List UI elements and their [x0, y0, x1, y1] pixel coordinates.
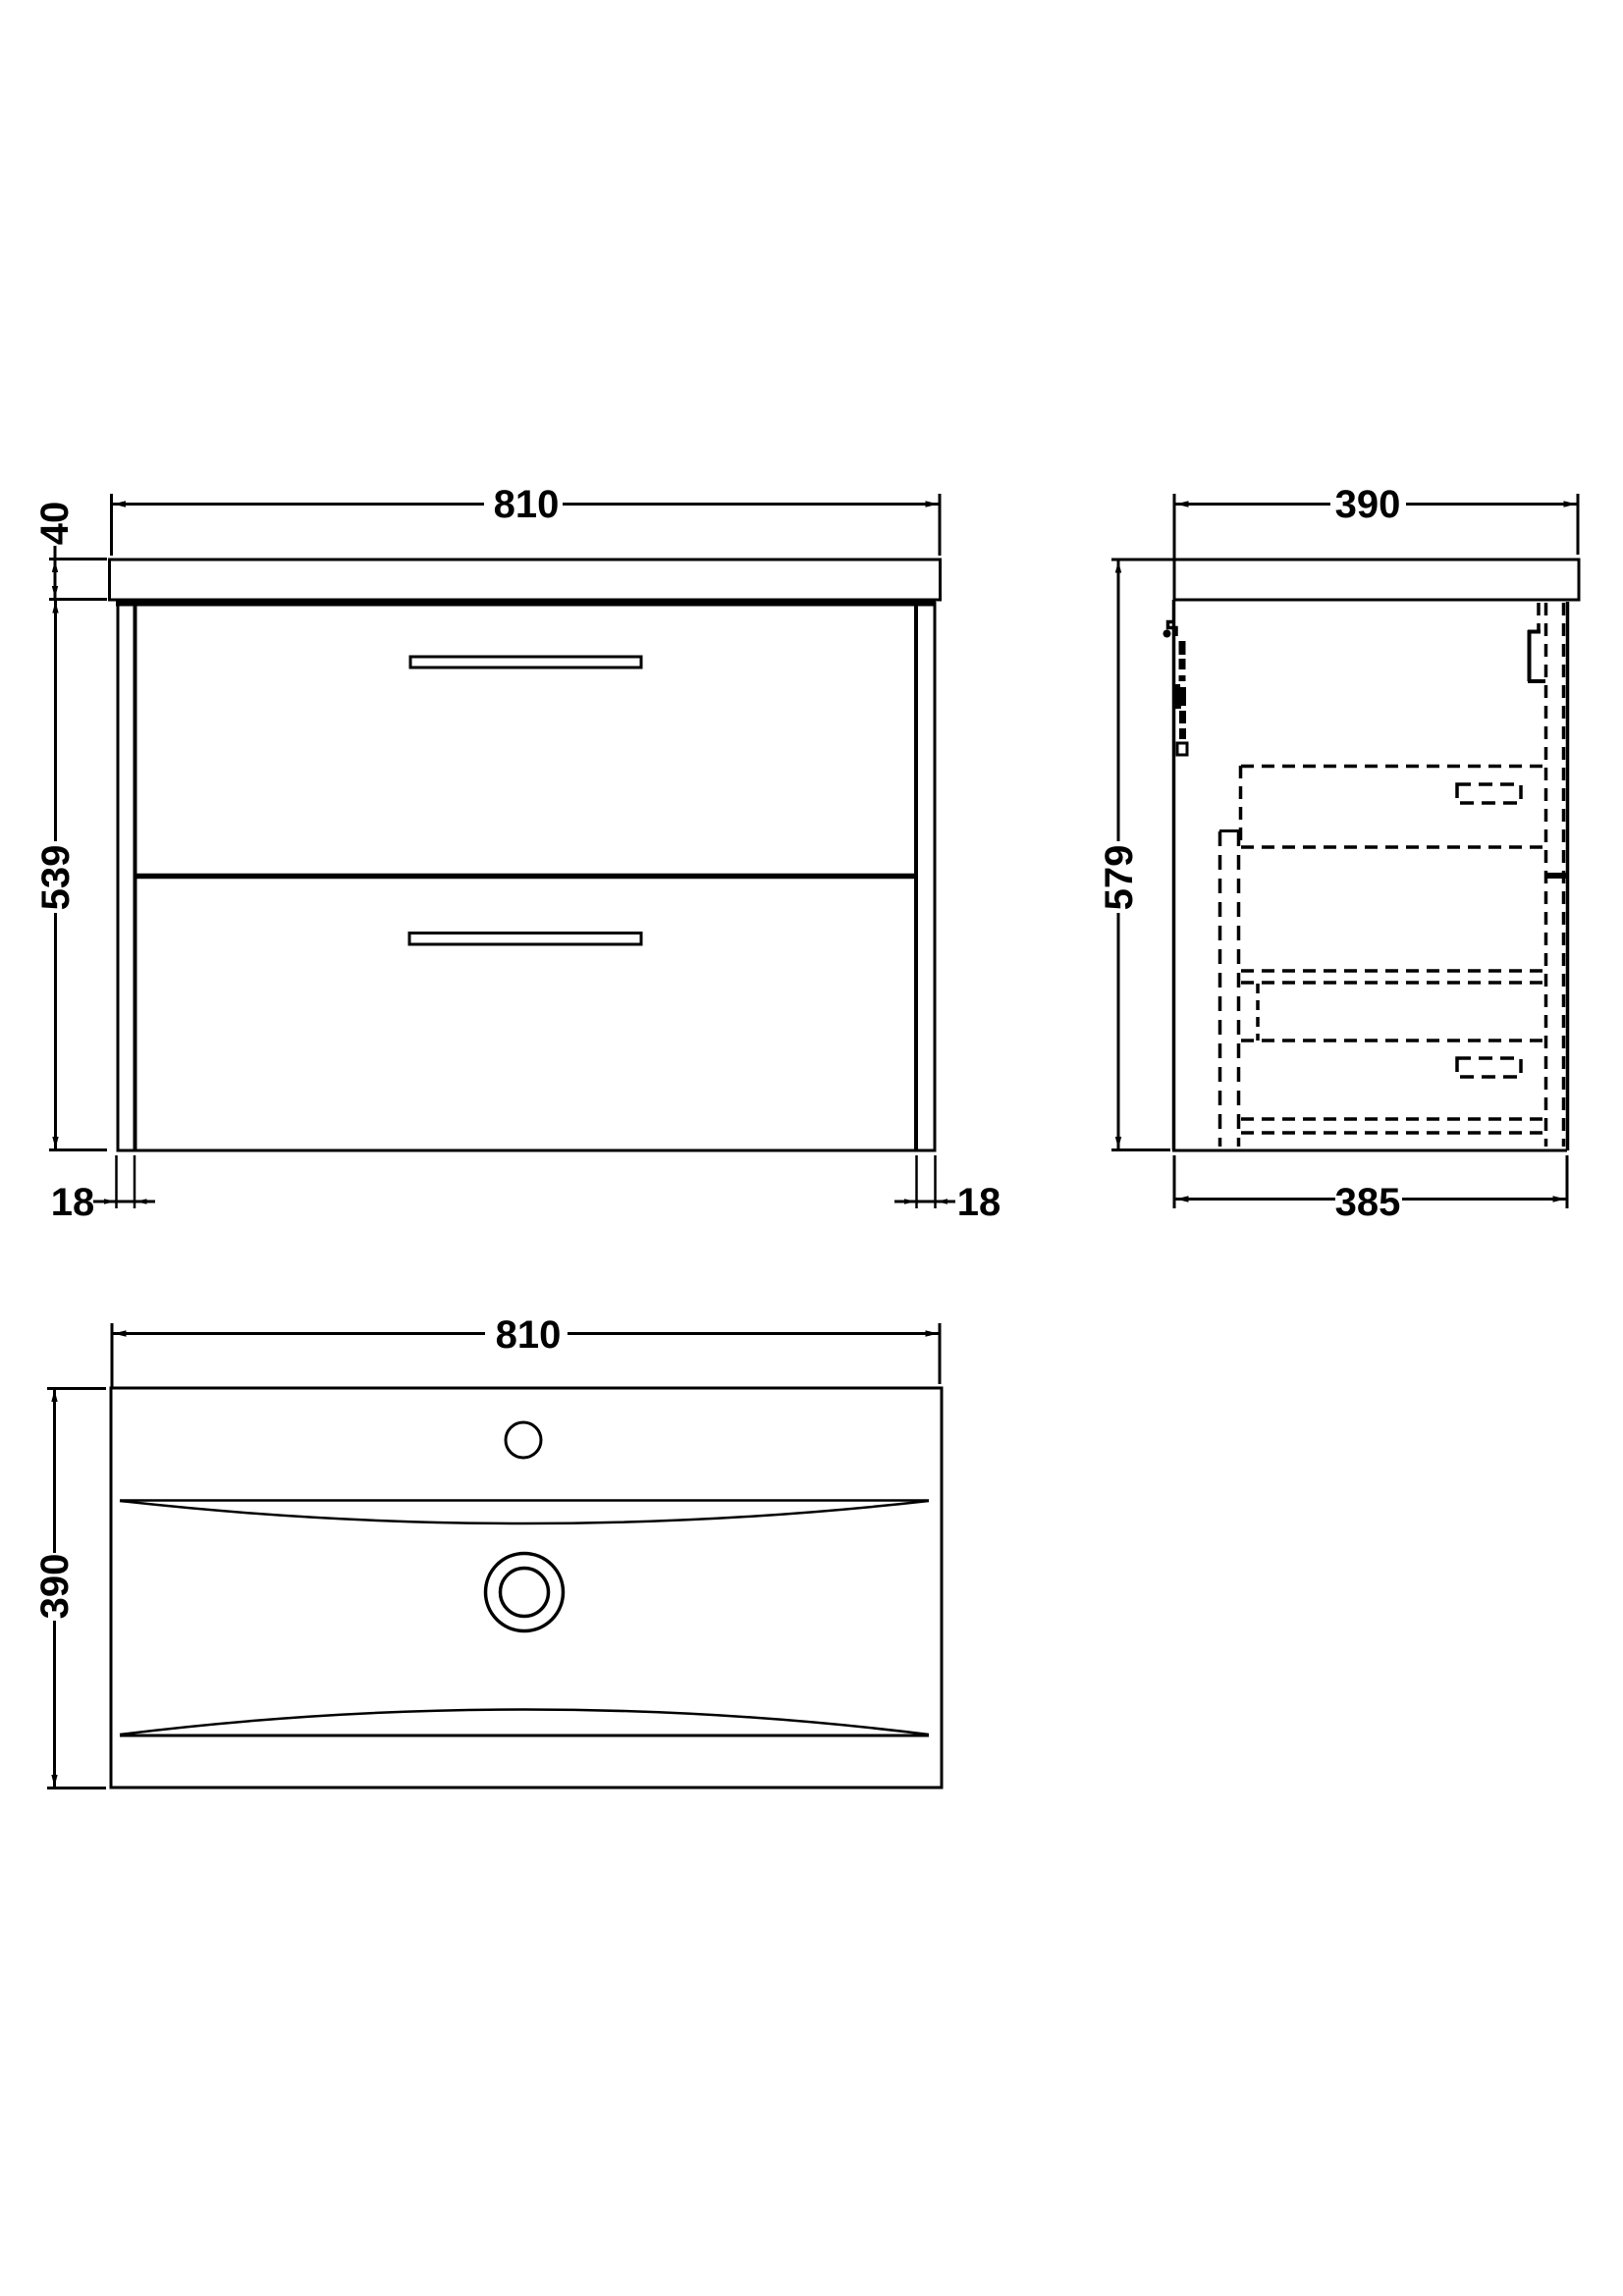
svg-text:385: 385 — [1335, 1181, 1401, 1224]
svg-text:40: 40 — [33, 502, 77, 546]
svg-text:810: 810 — [496, 1313, 562, 1357]
svg-text:390: 390 — [33, 1554, 77, 1620]
svg-text:390: 390 — [1335, 483, 1401, 526]
svg-text:810: 810 — [494, 483, 560, 526]
svg-text:539: 539 — [34, 845, 78, 911]
svg-text:579: 579 — [1098, 845, 1141, 911]
svg-text:18: 18 — [957, 1181, 1001, 1224]
svg-text:18: 18 — [51, 1181, 95, 1224]
